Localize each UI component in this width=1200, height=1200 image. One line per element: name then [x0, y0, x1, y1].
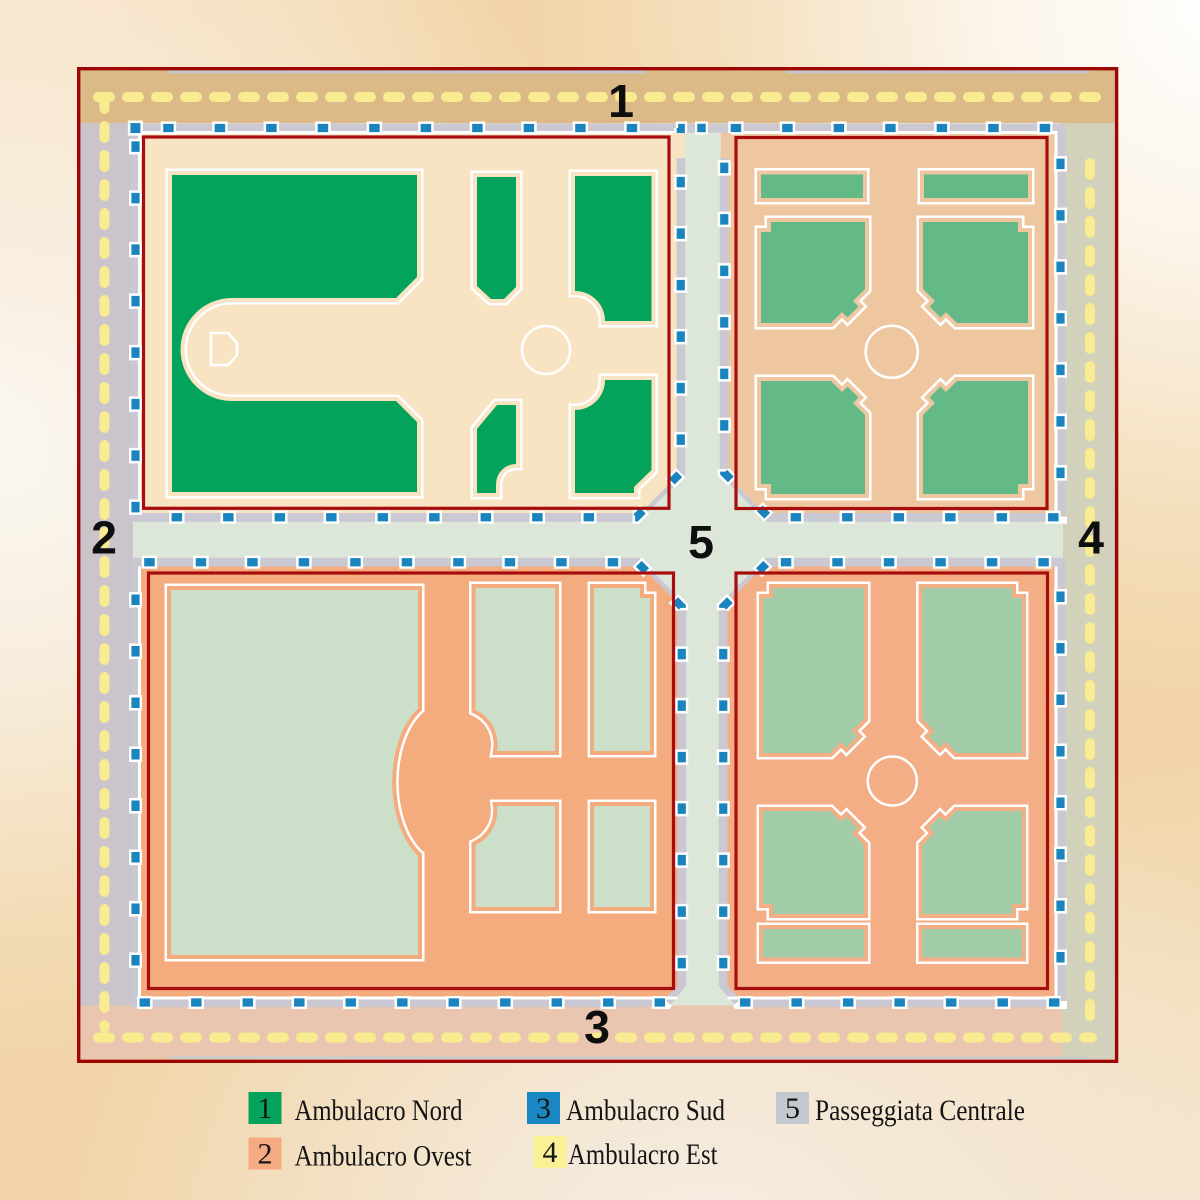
svg-text:Ambulacro Ovest: Ambulacro Ovest	[295, 1140, 473, 1173]
svg-text:Ambulacro Est: Ambulacro Est	[568, 1138, 718, 1171]
svg-text:Ambulacro Nord: Ambulacro Nord	[295, 1094, 463, 1127]
svg-text:1: 1	[608, 75, 634, 127]
svg-text:4: 4	[1078, 512, 1104, 564]
svg-text:4: 4	[543, 1136, 558, 1169]
svg-text:5: 5	[688, 516, 714, 568]
svg-text:3: 3	[584, 1001, 610, 1053]
svg-text:5: 5	[785, 1092, 800, 1125]
svg-text:Ambulacro Sud: Ambulacro Sud	[566, 1094, 725, 1127]
svg-text:3: 3	[536, 1092, 551, 1125]
svg-text:1: 1	[258, 1092, 273, 1125]
svg-text:Passeggiata Centrale: Passeggiata Centrale	[815, 1094, 1025, 1127]
svg-text:2: 2	[91, 512, 117, 564]
svg-text:2: 2	[258, 1138, 273, 1171]
